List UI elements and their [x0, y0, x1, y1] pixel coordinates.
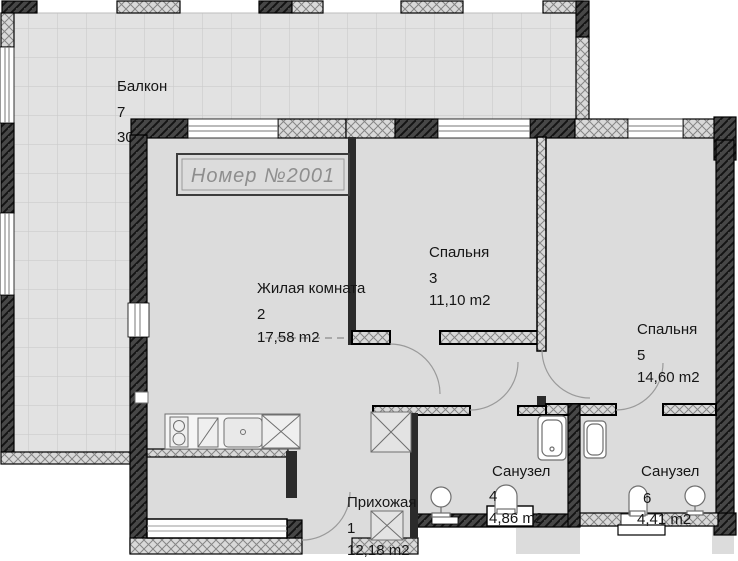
wall-segment	[117, 1, 180, 13]
wall-segment	[395, 119, 438, 138]
room-name: Санузел	[492, 463, 550, 480]
exterior-notch	[418, 528, 516, 561]
room-area: 11,10 m2	[429, 292, 490, 309]
wall-segment	[683, 119, 716, 138]
wall-segment	[2, 1, 37, 13]
wall-segment	[716, 140, 734, 520]
wall-segment	[546, 404, 616, 415]
room-area: 12,18 m2	[347, 542, 410, 559]
kitchen-fixtures	[165, 414, 300, 449]
washbasin-base	[432, 513, 450, 517]
vent-slot	[432, 517, 458, 524]
wall-segment	[401, 1, 463, 13]
wall-segment	[663, 404, 716, 415]
room-name: Жилая комната	[257, 280, 366, 297]
wall-segment	[130, 135, 147, 305]
wall-segment	[576, 1, 589, 37]
room-name: Прихожая	[347, 494, 417, 511]
window	[147, 519, 287, 538]
wall-segment	[575, 119, 628, 138]
room-number: 4	[489, 488, 497, 505]
wall-segment	[287, 520, 302, 538]
room-number: 2	[257, 306, 265, 323]
wall-segment	[1, 13, 14, 47]
room-number: 3	[429, 270, 437, 287]
radiator	[135, 392, 148, 403]
wall-segment	[286, 451, 297, 498]
room-number: 1	[347, 520, 355, 537]
window	[188, 119, 278, 138]
room-name: Спальня	[429, 244, 489, 261]
wall-segment	[292, 1, 323, 13]
wall-segment	[518, 406, 546, 415]
unit-title: Номер №2001	[191, 165, 335, 187]
room-number: 5	[637, 347, 645, 364]
room-name: Балкон	[117, 78, 167, 95]
window	[438, 119, 530, 138]
wall-segment	[1, 295, 14, 452]
floor-plan-page: Балкон 7 30,01 m2	[0, 0, 738, 561]
room-number: 7	[117, 104, 125, 121]
room-area: 14,60 m2	[637, 369, 700, 386]
wall-segment	[1, 123, 14, 213]
room-name: Санузел	[641, 463, 699, 480]
wall-segment	[537, 137, 546, 351]
wall-segment	[568, 404, 580, 527]
room-area: 4,41 m2	[637, 511, 691, 528]
window	[628, 119, 683, 138]
room-name: Спальня	[637, 321, 697, 338]
unit-title-box: Номер №2001	[177, 154, 349, 195]
room-area: 4,86 m2	[489, 510, 543, 527]
wall-segment	[352, 331, 390, 344]
window	[0, 47, 14, 123]
washbasin	[431, 487, 451, 507]
wall-segment	[130, 337, 147, 553]
washbasin	[685, 486, 705, 506]
kitchen-sink	[224, 418, 262, 447]
wall-segment	[130, 538, 302, 554]
window	[0, 213, 14, 295]
window	[128, 303, 149, 337]
wall-segment	[530, 119, 575, 138]
wall-segment	[440, 331, 544, 344]
wall-segment	[346, 119, 396, 138]
wall-segment	[278, 119, 346, 138]
room-number: 6	[643, 490, 651, 507]
wall-segment	[147, 449, 288, 457]
floor-plan-svg: Балкон 7 30,01 m2	[0, 0, 738, 561]
room-area: 17,58 m2	[257, 329, 320, 346]
wall-segment	[1, 452, 132, 464]
wall-segment	[259, 1, 292, 13]
